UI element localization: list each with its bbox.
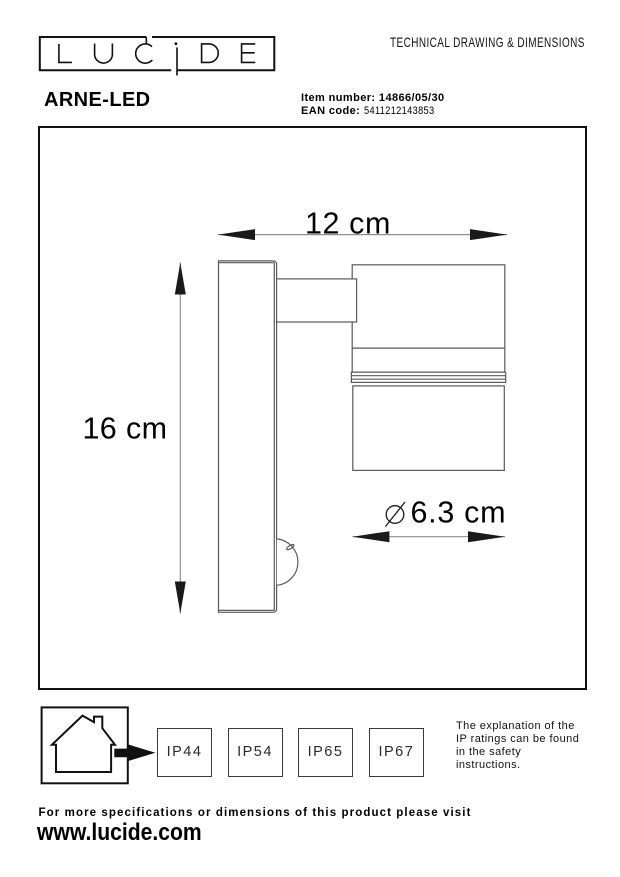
svg-text:16 cm: 16 cm: [82, 412, 167, 446]
svg-text:6.3 cm: 6.3 cm: [411, 496, 507, 530]
svg-text:12 cm: 12 cm: [305, 207, 391, 241]
